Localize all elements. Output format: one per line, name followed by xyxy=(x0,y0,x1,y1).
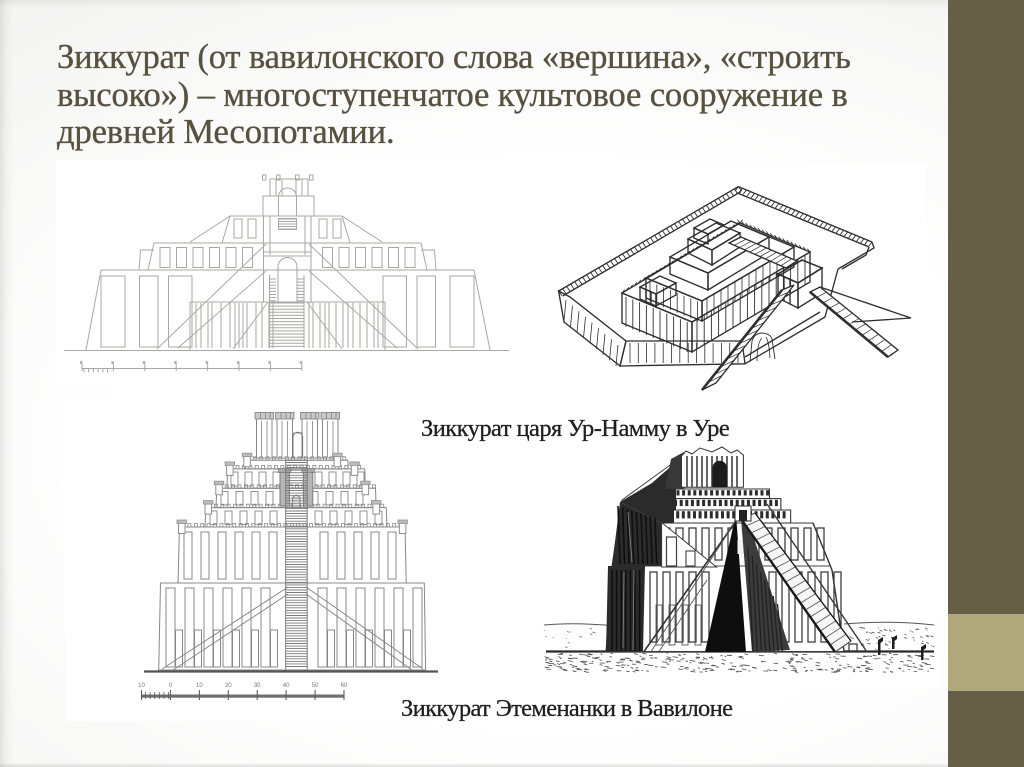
svg-text:10: 10 xyxy=(196,683,203,689)
svg-text:30: 30 xyxy=(254,683,261,689)
svg-text:50: 50 xyxy=(312,683,319,689)
svg-text:0: 0 xyxy=(169,683,173,689)
svg-text:20: 20 xyxy=(225,683,232,689)
svg-text:10: 10 xyxy=(138,683,145,689)
svg-text:60: 60 xyxy=(341,683,348,689)
svg-text:40: 40 xyxy=(283,683,290,689)
